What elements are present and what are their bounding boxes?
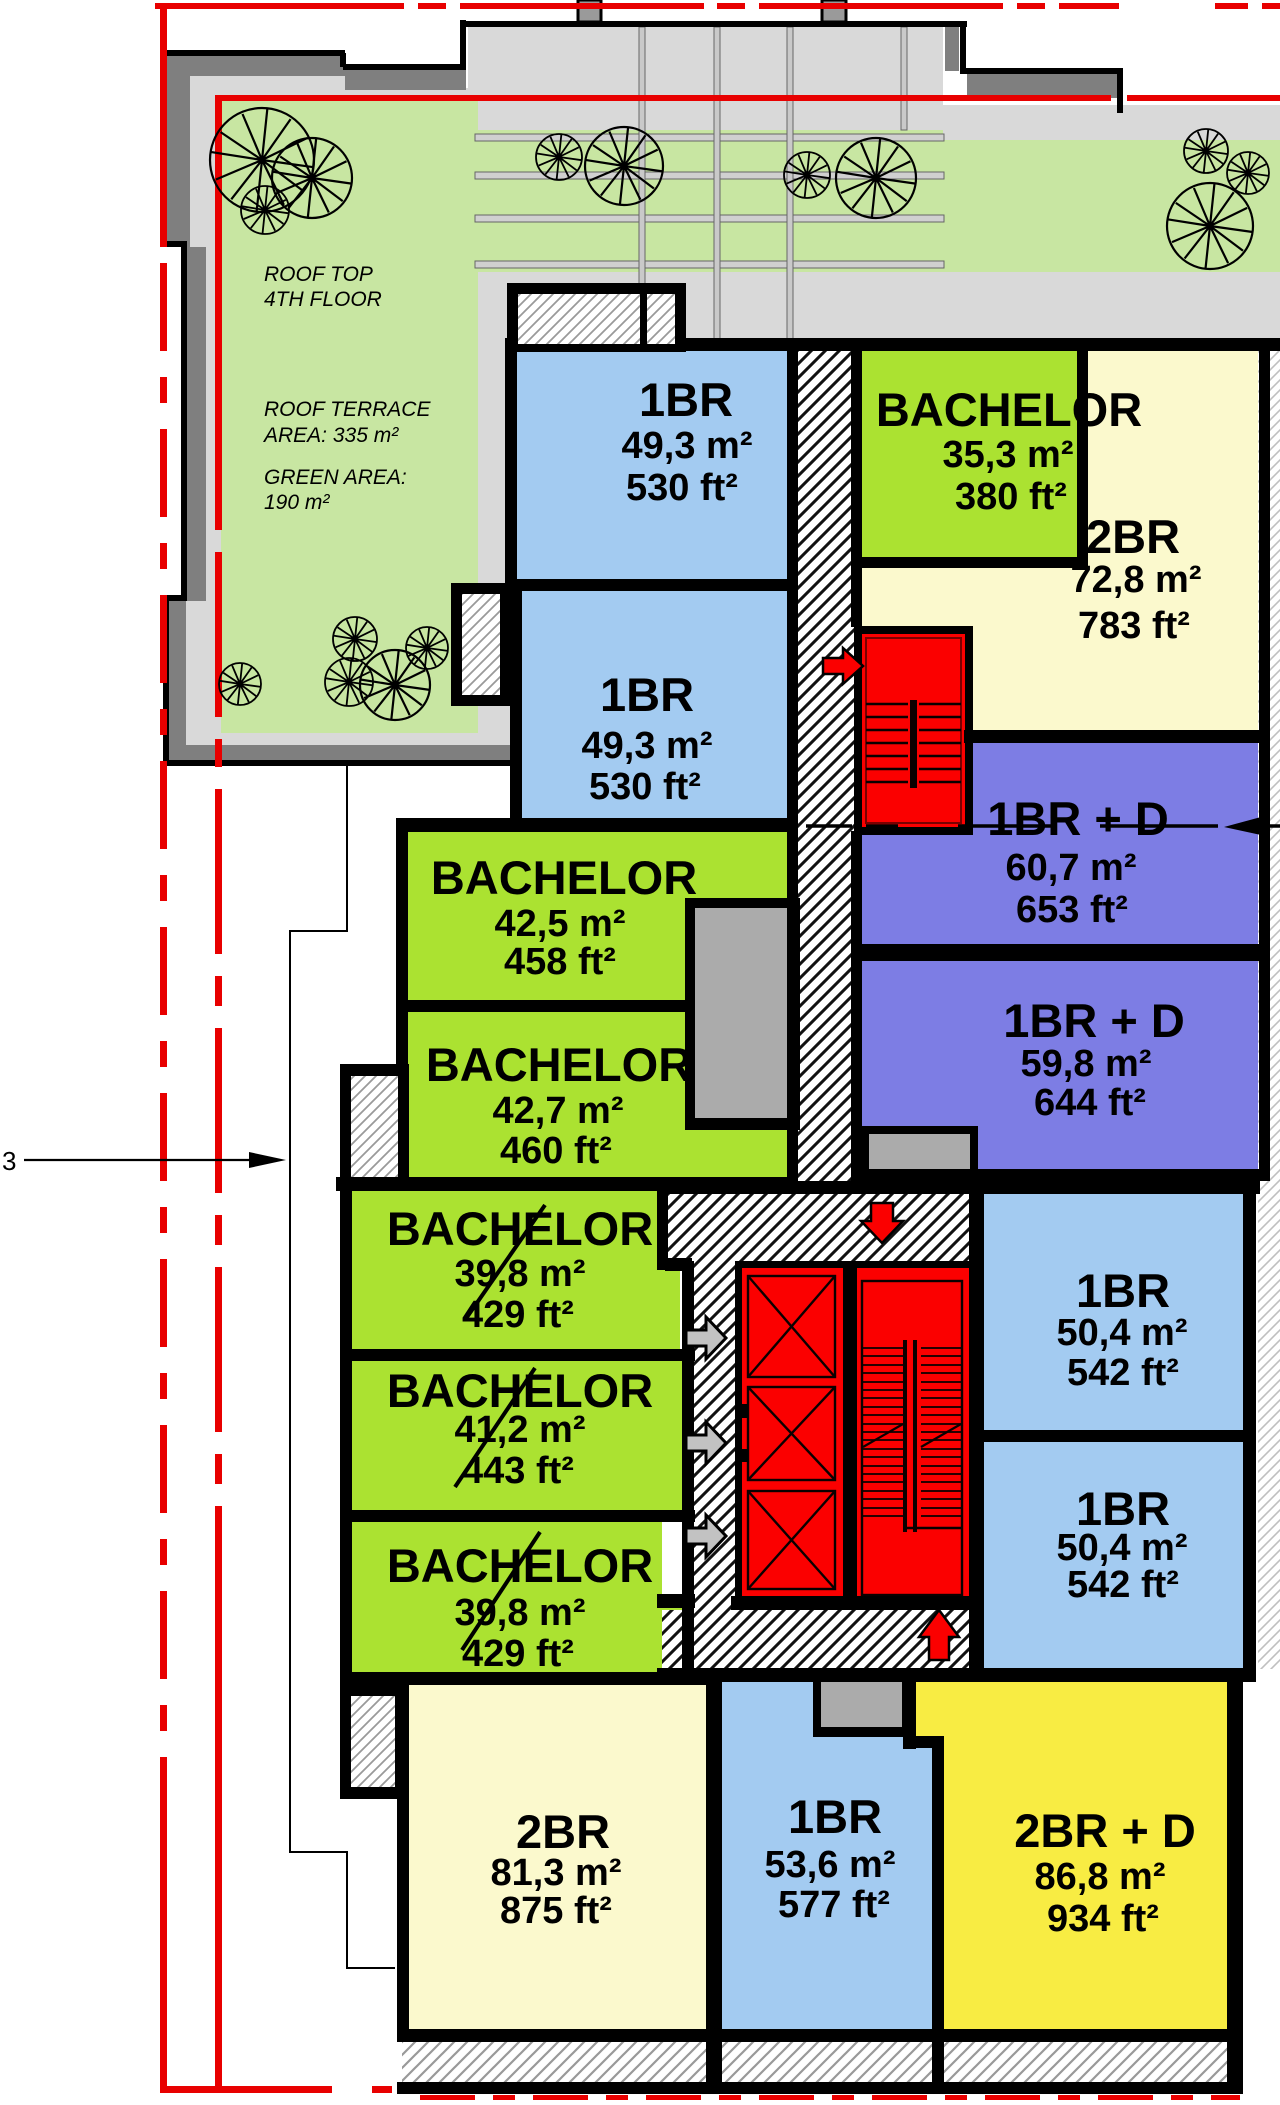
svg-text:86,8 m²: 86,8 m²: [1035, 1856, 1166, 1898]
svg-text:1BR: 1BR: [639, 373, 733, 426]
svg-text:1BR: 1BR: [600, 668, 694, 721]
svg-text:530 ft²: 530 ft²: [589, 766, 701, 808]
svg-text:3: 3: [2, 1146, 16, 1176]
svg-text:460 ft²: 460 ft²: [500, 1130, 612, 1172]
svg-text:53,6 m²: 53,6 m²: [765, 1844, 896, 1886]
svg-text:644 ft²: 644 ft²: [1034, 1082, 1146, 1124]
svg-text:42,5 m²: 42,5 m²: [495, 903, 626, 945]
svg-text:BACHELOR: BACHELOR: [431, 851, 697, 904]
svg-text:49,3 m²: 49,3 m²: [622, 425, 753, 467]
svg-text:BACHELOR: BACHELOR: [387, 1202, 653, 1255]
svg-text:BACHELOR: BACHELOR: [426, 1038, 692, 1091]
svg-text:190 m²: 190 m²: [264, 491, 330, 514]
svg-text:2BR + D: 2BR + D: [1014, 1804, 1196, 1857]
svg-text:542 ft²: 542 ft²: [1067, 1352, 1179, 1394]
svg-text:42,7 m²: 42,7 m²: [493, 1090, 624, 1132]
svg-text:653 ft²: 653 ft²: [1016, 889, 1128, 931]
svg-text:39,8 m²: 39,8 m²: [455, 1253, 586, 1295]
svg-text:1BR: 1BR: [788, 1790, 882, 1843]
svg-text:GREEN AREA:: GREEN AREA:: [264, 466, 407, 489]
svg-text:35,3 m²: 35,3 m²: [943, 434, 1074, 476]
svg-text:4TH FLOOR: 4TH FLOOR: [264, 288, 382, 311]
svg-text:49,3 m²: 49,3 m²: [582, 725, 713, 767]
svg-text:783 ft²: 783 ft²: [1078, 605, 1190, 647]
svg-text:ROOF TERRACE: ROOF TERRACE: [264, 398, 431, 421]
svg-text:1BR + D: 1BR + D: [1003, 994, 1185, 1047]
svg-text:50,4 m²: 50,4 m²: [1057, 1527, 1188, 1569]
svg-text:60,7 m²: 60,7 m²: [1006, 847, 1137, 889]
svg-text:41,2 m²: 41,2 m²: [455, 1409, 586, 1451]
svg-text:380 ft²: 380 ft²: [955, 476, 1067, 518]
svg-text:875 ft²: 875 ft²: [500, 1890, 612, 1932]
svg-text:2BR: 2BR: [516, 1805, 610, 1858]
svg-text:429 ft²: 429 ft²: [462, 1633, 574, 1675]
svg-text:50,4 m²: 50,4 m²: [1057, 1312, 1188, 1354]
svg-text:530 ft²: 530 ft²: [626, 467, 738, 509]
svg-text:458 ft²: 458 ft²: [504, 941, 616, 983]
svg-text:2BR: 2BR: [1086, 510, 1180, 563]
svg-text:1BR + D: 1BR + D: [987, 792, 1169, 845]
svg-text:39,8 m²: 39,8 m²: [455, 1592, 586, 1634]
svg-text:934 ft²: 934 ft²: [1047, 1898, 1159, 1940]
svg-text:443 ft²: 443 ft²: [462, 1450, 574, 1492]
svg-text:72,8 m²: 72,8 m²: [1071, 559, 1202, 601]
svg-text:BACHELOR: BACHELOR: [876, 383, 1142, 436]
svg-text:577 ft²: 577 ft²: [778, 1884, 890, 1926]
svg-text:542 ft²: 542 ft²: [1067, 1564, 1179, 1606]
svg-text:ROOF TOP: ROOF TOP: [264, 263, 373, 286]
svg-text:59,8 m²: 59,8 m²: [1021, 1043, 1152, 1085]
svg-text:1BR: 1BR: [1076, 1264, 1170, 1317]
svg-text:81,3 m²: 81,3 m²: [491, 1852, 622, 1894]
svg-text:AREA: 335 m²: AREA: 335 m²: [262, 424, 399, 447]
